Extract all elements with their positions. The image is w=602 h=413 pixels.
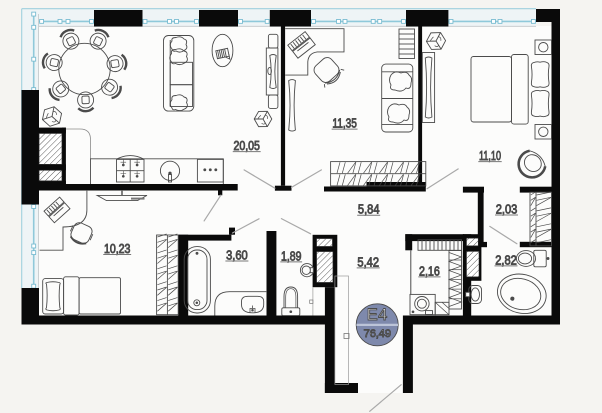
- svg-text:2,03: 2,03: [496, 202, 518, 216]
- svg-text:3,60: 3,60: [226, 248, 248, 262]
- svg-text:1,89: 1,89: [281, 249, 301, 263]
- svg-text:5,84: 5,84: [358, 203, 380, 217]
- svg-text:76,49: 76,49: [363, 328, 391, 340]
- svg-text:E4: E4: [367, 306, 388, 324]
- svg-text:20,05: 20,05: [233, 139, 260, 153]
- svg-text:2,82: 2,82: [495, 253, 517, 267]
- svg-text:10,23: 10,23: [104, 242, 131, 256]
- svg-text:11,10: 11,10: [479, 149, 501, 163]
- svg-text:2,16: 2,16: [419, 264, 440, 278]
- svg-text:11,35: 11,35: [332, 117, 357, 131]
- svg-text:5,42: 5,42: [357, 255, 379, 269]
